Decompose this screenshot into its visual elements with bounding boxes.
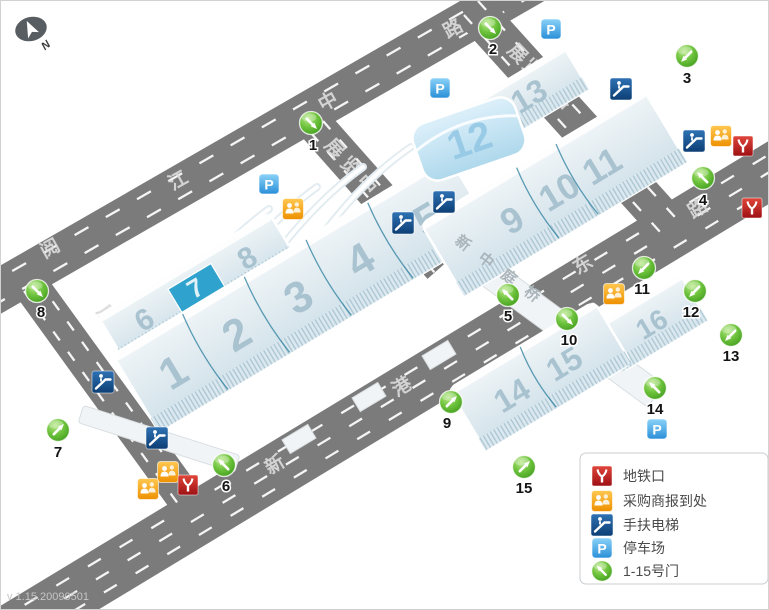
canton-fair-complex-map: P: [0, 0, 769, 610]
parking-marker-3[interactable]: [259, 174, 279, 194]
escalator-icon: [591, 514, 613, 536]
registration-marker-5[interactable]: [138, 479, 159, 500]
escalator-marker-1[interactable]: [610, 78, 632, 100]
svg-text:10: 10: [561, 332, 578, 349]
svg-text:15: 15: [516, 480, 533, 497]
svg-text:8: 8: [37, 304, 45, 321]
escalator-marker-3[interactable]: [433, 191, 455, 213]
svg-text:2: 2: [489, 41, 497, 58]
registration-marker-2[interactable]: [283, 199, 304, 220]
compass-north-label: N: [39, 38, 54, 53]
parking-marker-1[interactable]: [541, 19, 561, 39]
gate-marker-7[interactable]: 7: [47, 419, 70, 462]
registration-marker-1[interactable]: [711, 126, 732, 147]
compass: N: [12, 13, 53, 53]
gate-icon: [592, 561, 613, 582]
metro-marker-2[interactable]: [742, 198, 762, 218]
svg-text:13: 13: [723, 348, 740, 365]
legend-row-registration: 采购商报到处: [592, 491, 708, 512]
legend-label: 手扶电梯: [623, 517, 679, 533]
svg-text:3: 3: [683, 70, 691, 87]
svg-text:9: 9: [443, 415, 451, 432]
version-label: v 1.15.20090501: [7, 591, 89, 603]
svg-text:12: 12: [683, 304, 700, 321]
escalator-marker-6[interactable]: [146, 427, 168, 449]
gate-marker-15[interactable]: 15: [513, 456, 536, 498]
metro-marker-1[interactable]: [733, 136, 753, 156]
svg-text:5: 5: [504, 308, 512, 325]
legend-row-gates: 1-15号门: [592, 561, 679, 582]
gate-marker-13[interactable]: 13: [720, 324, 743, 366]
svg-text:11: 11: [634, 281, 650, 298]
buyer-registration-icon: [592, 491, 613, 512]
legend-label: 1-15号门: [623, 563, 679, 579]
parking-marker-2[interactable]: [430, 78, 450, 98]
gate-marker-9[interactable]: 9: [440, 391, 463, 433]
legend-label: 采购商报到处: [623, 493, 707, 509]
svg-text:6: 6: [222, 478, 230, 495]
legend-label: 地铁口: [623, 468, 665, 484]
escalator-marker-4[interactable]: [392, 212, 414, 234]
parking-icon: [592, 538, 612, 558]
metro-icon: [592, 466, 612, 486]
legend-label: 停车场: [623, 540, 665, 556]
legend-row-parking: 停车场: [592, 538, 665, 558]
svg-text:14: 14: [647, 401, 664, 418]
escalator-marker-5[interactable]: [92, 371, 114, 393]
metro-marker-3[interactable]: [178, 475, 198, 495]
legend-row-metro: 地铁口: [592, 466, 665, 486]
escalator-marker-2[interactable]: [683, 130, 705, 152]
legend-row-escalator: 手扶电梯: [591, 514, 679, 536]
svg-text:1: 1: [309, 137, 317, 154]
registration-marker-4[interactable]: [158, 462, 179, 483]
legend: 地铁口 采购商报到处 手扶电梯 停车场 1-15号门: [580, 453, 768, 584]
registration-marker-3[interactable]: [604, 284, 625, 305]
gate-marker-3[interactable]: 3: [676, 45, 699, 88]
parking-marker-4[interactable]: [647, 419, 667, 439]
svg-text:7: 7: [54, 444, 62, 461]
svg-text:4: 4: [699, 192, 708, 209]
